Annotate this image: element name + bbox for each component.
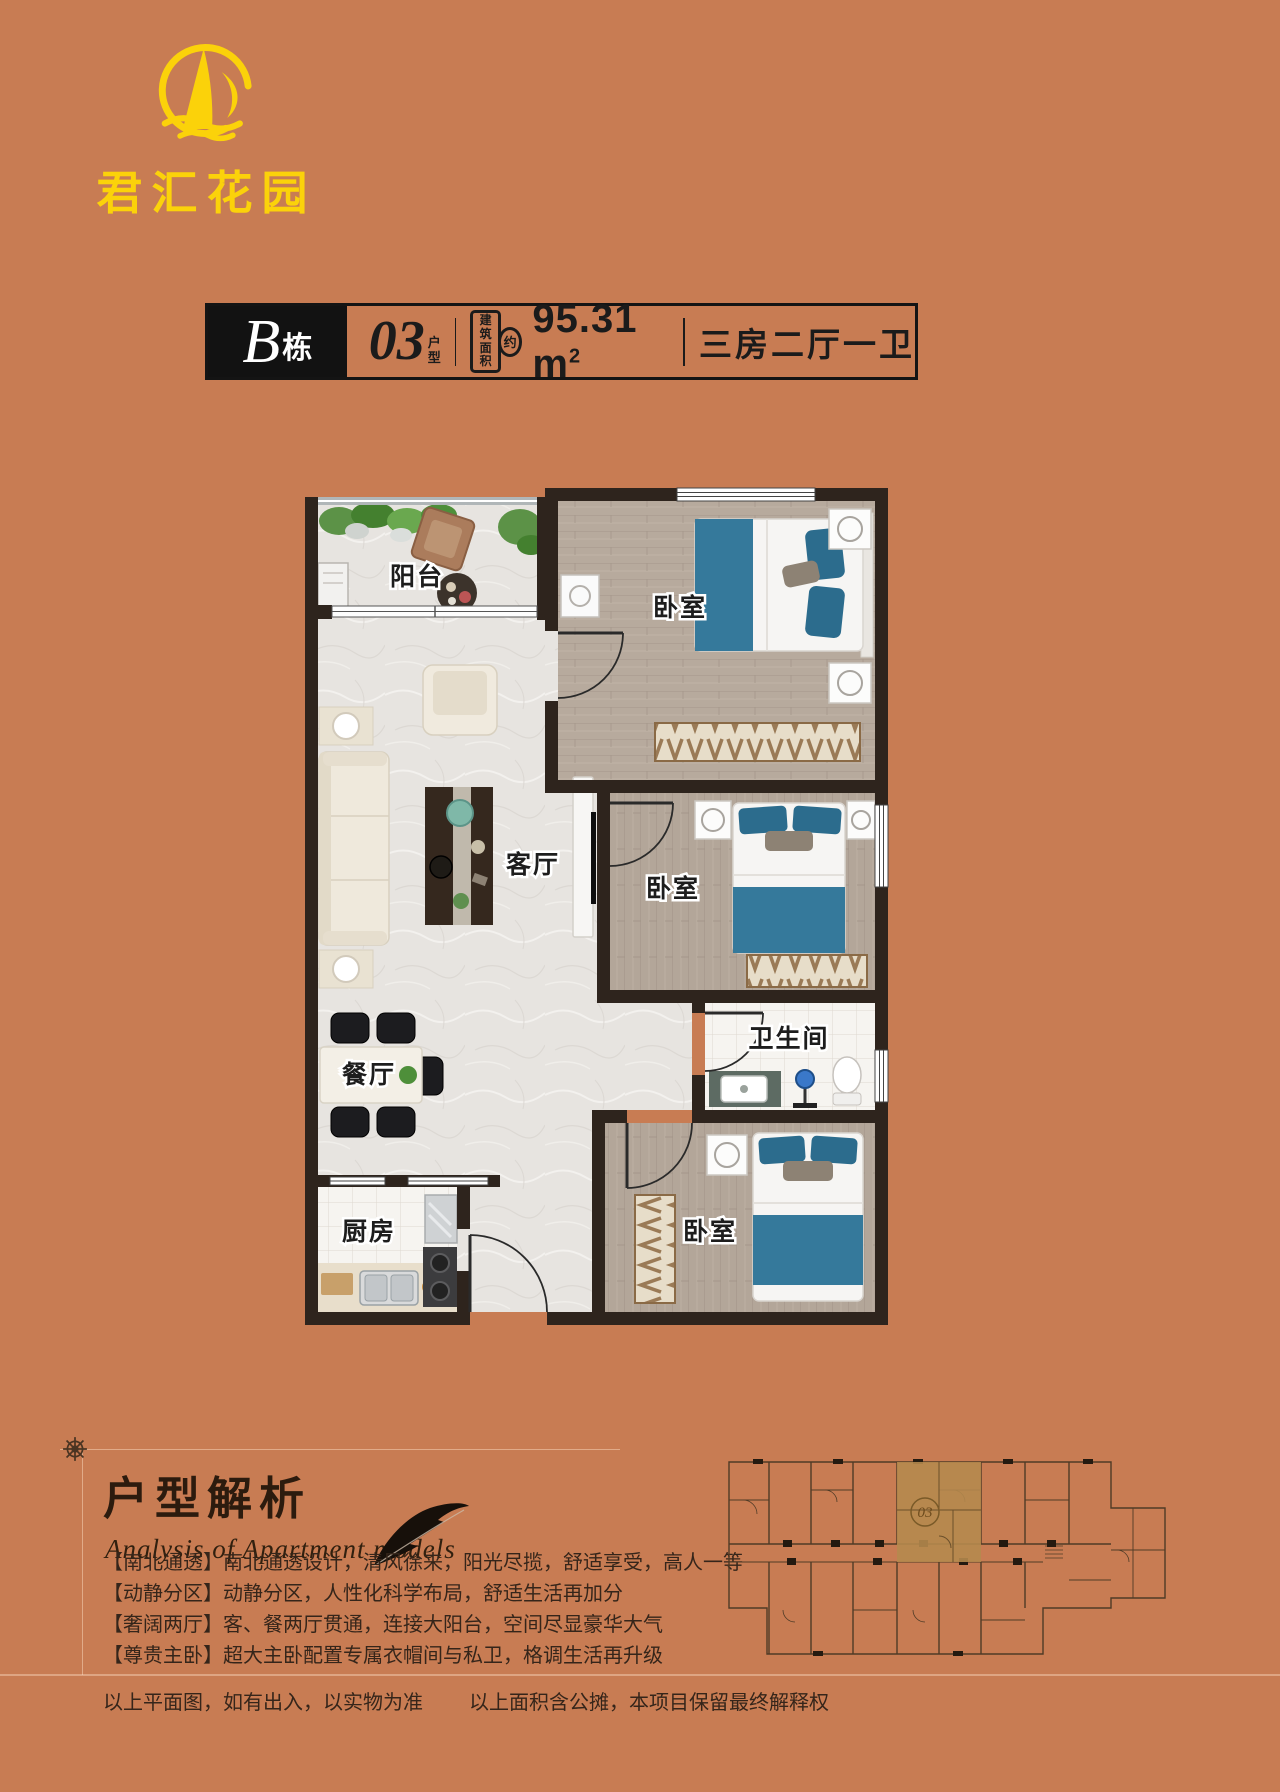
area-value: 95.31 m2 [532, 297, 669, 387]
rug [747, 955, 867, 987]
minimap-unit-label: 03 [918, 1505, 933, 1521]
room-label-balcony: 阳台 [390, 562, 444, 591]
unit-number: 03 [369, 316, 425, 366]
building-badge: B 栋 [208, 306, 347, 377]
nightstand [695, 801, 731, 839]
room-label-bathroom: 卫生间 [748, 1025, 829, 1053]
side-table [319, 950, 373, 988]
unit-suffix: 户 型 [428, 336, 441, 365]
decor-line [82, 1449, 83, 1675]
divider [683, 318, 685, 366]
unit-title-bar: B 栋 03 户 型 建筑 面积 约 95.31 m2 三房二厅一卫 [205, 303, 918, 380]
vestibule-floor [597, 1003, 692, 1110]
armchair [423, 665, 497, 735]
divider [455, 318, 457, 366]
disclaimer-left: 以上平面图，如有出入，以实物为准 [103, 1692, 423, 1714]
room-label-bedroom3: 卧室 [683, 1217, 737, 1246]
room-label-living: 客厅 [506, 850, 560, 879]
room-label-kitchen: 厨房 [342, 1217, 396, 1246]
window [875, 805, 888, 887]
balcony-ac-unit [318, 563, 348, 609]
tv-console [573, 777, 596, 937]
area-badge-label: 建筑 面积 [470, 310, 501, 373]
brand-logo: 君汇花园 [85, 42, 320, 223]
sailboat-logo-icon [144, 42, 262, 148]
disclaimer: 以上平面图，如有出入，以实物为准以上面积含公摊，本项目保留最终解释权 [103, 1686, 875, 1715]
window [875, 1050, 888, 1102]
balcony-glass-door [332, 606, 537, 617]
building-suffix: 栋 [282, 323, 312, 367]
ship-wheel-icon [62, 1436, 88, 1462]
analysis-bullet: 【动静分区】动静分区，人性化科学布局，舒适生活再加分 [103, 1579, 663, 1610]
room-label-dining: 餐厅 [342, 1061, 396, 1089]
analysis-bullet: 【南北通透】南北通透设计，清风徐来，阳光尽揽，舒适享受，高人一等 [103, 1548, 663, 1579]
room-count-label: 三房二厅一卫 [699, 318, 915, 366]
analysis-bullet: 【尊贵主卧】超大主卧配置专属衣帽间与私卫，格调生活再升级 [103, 1641, 663, 1672]
area-badge: 建筑 面积 约 [470, 310, 522, 373]
sofa [319, 752, 389, 945]
decor-line [60, 1449, 620, 1450]
poster-page: 君汇花园 B 栋 03 户 型 建筑 面积 约 95.31 m2 三房二厅一卫 [0, 0, 1280, 1792]
analysis-bullet: 【奢阔两厅】客、餐两厅贯通，连接大阳台，空间尽显豪华大气 [103, 1610, 663, 1641]
room-label-bedroom2: 卧室 [646, 874, 700, 903]
window [677, 488, 815, 501]
floor-plan: 阳台 卧室 客厅 卧室 餐厅 卫生间 厨房 卧室 [305, 435, 890, 1325]
rug [635, 1195, 675, 1303]
bed [733, 803, 845, 953]
floor-plate-minimap: 03 [713, 1450, 1178, 1675]
disclaimer-right: 以上面积含公摊，本项目保留最终解释权 [469, 1692, 829, 1714]
room-label-bedroom1: 卧室 [653, 593, 707, 622]
bed [753, 1133, 863, 1301]
toilet [833, 1057, 861, 1105]
building-letter: B [242, 315, 280, 371]
foyer-floor [457, 1175, 592, 1312]
side-table [319, 707, 373, 745]
brand-name: 君汇花园 [89, 157, 324, 223]
coffee-table [425, 787, 493, 925]
analysis-bullets: 【南北通透】南北通透设计，清风徐来，阳光尽揽，舒适享受，高人一等 【动静分区】动… [103, 1548, 663, 1672]
nightstand [707, 1135, 747, 1175]
window [330, 1177, 488, 1185]
analysis-title: 户型解析 [103, 1462, 311, 1527]
area-approx-circle: 约 [498, 327, 523, 357]
nightstand [829, 509, 871, 549]
bathroom-vanity [709, 1071, 781, 1107]
nightstand [847, 801, 875, 839]
nightstand [829, 663, 871, 703]
rug [655, 723, 860, 761]
washing-machine [561, 575, 599, 617]
balcony-railing [318, 497, 537, 505]
